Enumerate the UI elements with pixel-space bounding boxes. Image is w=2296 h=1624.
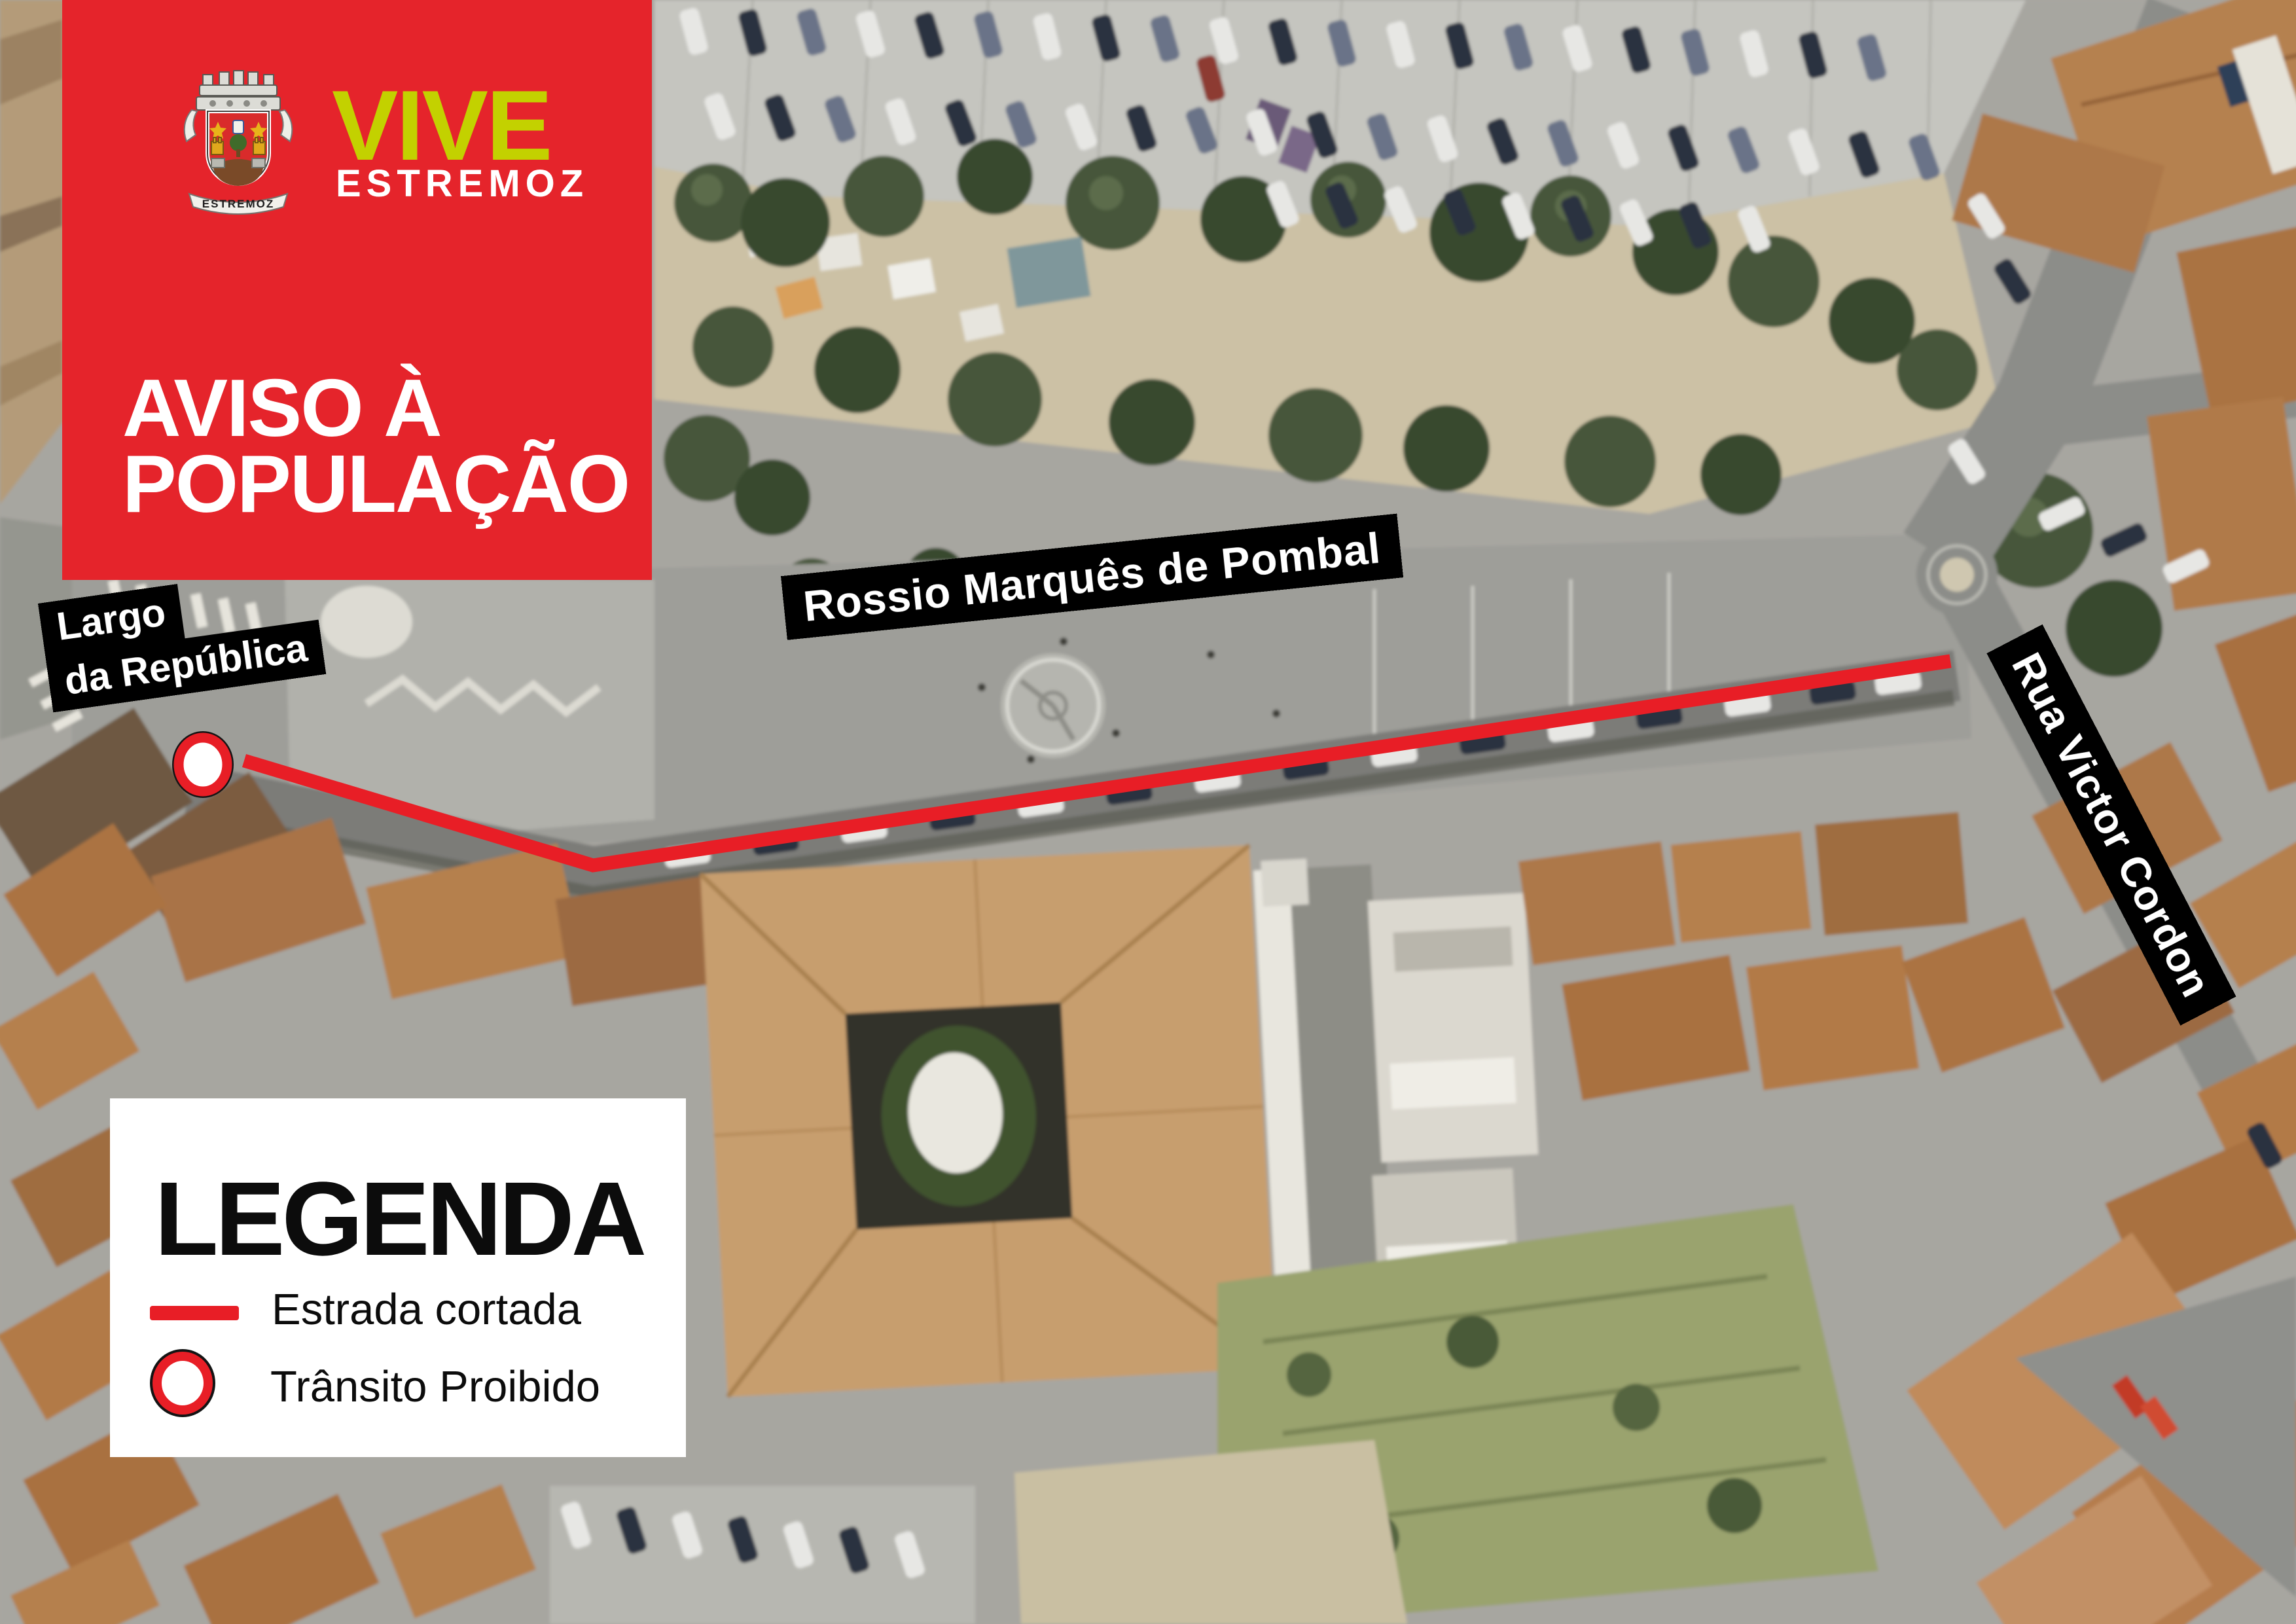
brand-vive: VIVE bbox=[332, 76, 550, 175]
legend-panel: LEGENDA Estrada cortada Trânsito Proibid… bbox=[110, 1098, 686, 1457]
legend-item-transito-proibido: Trânsito Proibido bbox=[270, 1363, 600, 1411]
brand-estremoz: ESTREMOZ bbox=[336, 165, 588, 203]
notice-heading-line1: AVISO À bbox=[122, 370, 629, 446]
no-entry-sign-marker bbox=[173, 732, 232, 797]
estremoz-coat-of-arms-icon: ESTREMOZ bbox=[172, 68, 304, 219]
no-entry-ring-icon bbox=[152, 1352, 213, 1415]
notice-banner: ESTREMOZ VIVE ESTREMOZ AVISO À POPULAÇÃO bbox=[62, 0, 652, 580]
compass-rose bbox=[1001, 653, 1105, 758]
road-closure-notice-poster: Rossio Marquês de Pombal Largo da Repúbl… bbox=[0, 0, 2296, 1624]
legend-title: LEGENDA bbox=[154, 1166, 643, 1271]
closed-road-line-icon bbox=[150, 1306, 239, 1320]
notice-heading-line2: POPULAÇÃO bbox=[122, 446, 629, 522]
legend-item-estrada-cortada: Estrada cortada bbox=[272, 1286, 581, 1334]
roundabout bbox=[1916, 534, 1998, 615]
notice-heading: AVISO À POPULAÇÃO bbox=[122, 370, 629, 522]
top-left-roofs bbox=[0, 0, 65, 504]
monastery-building bbox=[700, 845, 1277, 1397]
crest-motto: ESTREMOZ bbox=[202, 198, 274, 210]
